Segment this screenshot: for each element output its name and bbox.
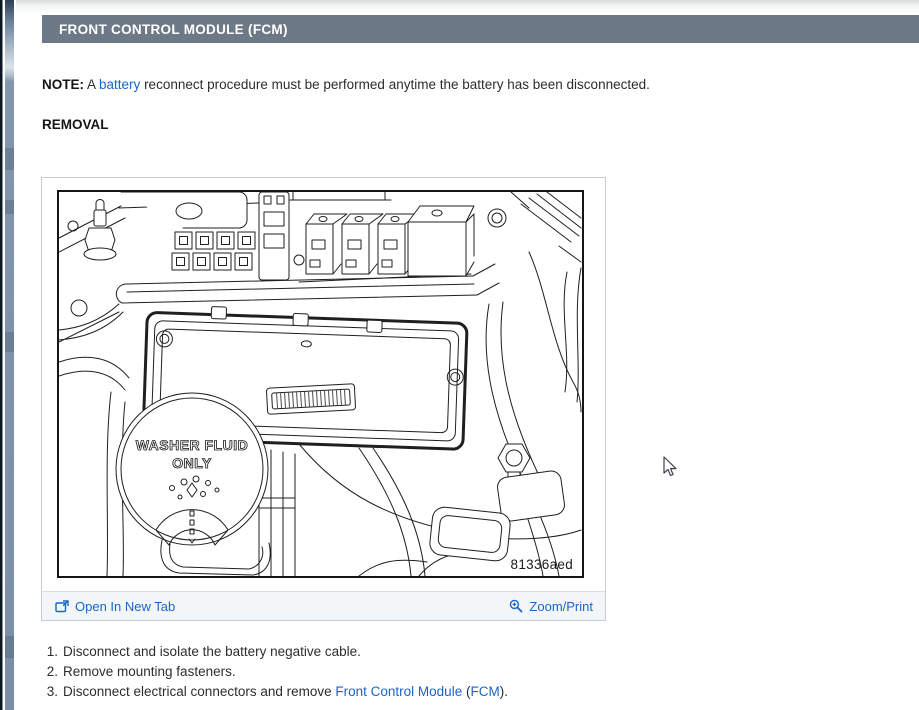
step-3: 3.Disconnect electrical connectors and r… [42, 683, 508, 703]
front-control-module-link[interactable]: Front Control Module [335, 684, 462, 699]
washer-fluid-cap: WASHER FLUID ONLY [116, 393, 270, 575]
scrollbar-shade [5, 332, 14, 352]
ribbed-connector [266, 384, 355, 415]
step-2: 2.Remove mounting fasteners. [42, 663, 508, 683]
mounting-stud [68, 200, 116, 317]
zoom-in-icon [509, 599, 523, 613]
fcm-engine-diagram: WASHER FLUID ONLY [59, 192, 582, 576]
step-text: Disconnect and isolate the battery negat… [63, 644, 361, 659]
scrollbar-shade [5, 148, 14, 170]
figure-widget: WASHER FLUID ONLY [41, 177, 606, 621]
note-label: NOTE: [42, 77, 84, 92]
note-paragraph: NOTE: A battery reconnect procedure must… [42, 76, 650, 93]
step-text: Disconnect electrical connectors and rem… [63, 684, 335, 699]
manual-page: FRONT CONTROL MODULE (FCM) NOTE: A batte… [0, 0, 919, 710]
note-text: A [84, 77, 99, 92]
fuse-box [121, 192, 255, 270]
left-scrollbar-rail[interactable] [0, 0, 16, 710]
open-in-new-tab-icon [55, 600, 69, 613]
step-number: 3. [42, 683, 58, 701]
fcm-link[interactable]: FCM [470, 684, 499, 699]
step-text: Remove mounting fasteners. [63, 664, 236, 679]
top-gradient [16, 0, 919, 13]
open-in-new-tab-label: Open In New Tab [75, 599, 175, 614]
battery-link[interactable]: battery [99, 77, 140, 92]
drawing-code: 81336aed [511, 557, 573, 572]
step-text: ). [500, 684, 508, 699]
relay-cubes [306, 206, 474, 276]
washer-cap-label-line2: ONLY [172, 455, 212, 471]
step-1: 1.Disconnect and isolate the battery neg… [42, 643, 508, 663]
removal-heading: REMOVAL [42, 117, 109, 132]
scrollbar-thumb[interactable] [5, 0, 14, 710]
step-number: 1. [42, 643, 58, 661]
section-title: FRONT CONTROL MODULE (FCM) [42, 22, 288, 37]
note-text: reconnect procedure must be performed an… [140, 77, 650, 92]
scrollbar-shade [5, 200, 14, 214]
zoom-print-label: Zoom/Print [529, 599, 593, 614]
right-bolt [429, 444, 566, 562]
washer-cap-label-line1: WASHER FLUID [136, 437, 249, 453]
connector-column [259, 192, 304, 280]
open-in-new-tab-link[interactable]: Open In New Tab [55, 599, 175, 614]
section-header-bar: FRONT CONTROL MODULE (FCM) [42, 15, 919, 43]
removal-steps: 1.Disconnect and isolate the battery neg… [42, 643, 508, 703]
zoom-print-link[interactable]: Zoom/Print [509, 599, 593, 614]
scrollbar-shade [5, 636, 14, 658]
mouse-cursor [663, 456, 679, 478]
figure-toolbar: Open In New Tab Zoom/Print [42, 591, 605, 620]
step-number: 2. [42, 663, 58, 681]
diagram-frame: WASHER FLUID ONLY [57, 190, 584, 578]
